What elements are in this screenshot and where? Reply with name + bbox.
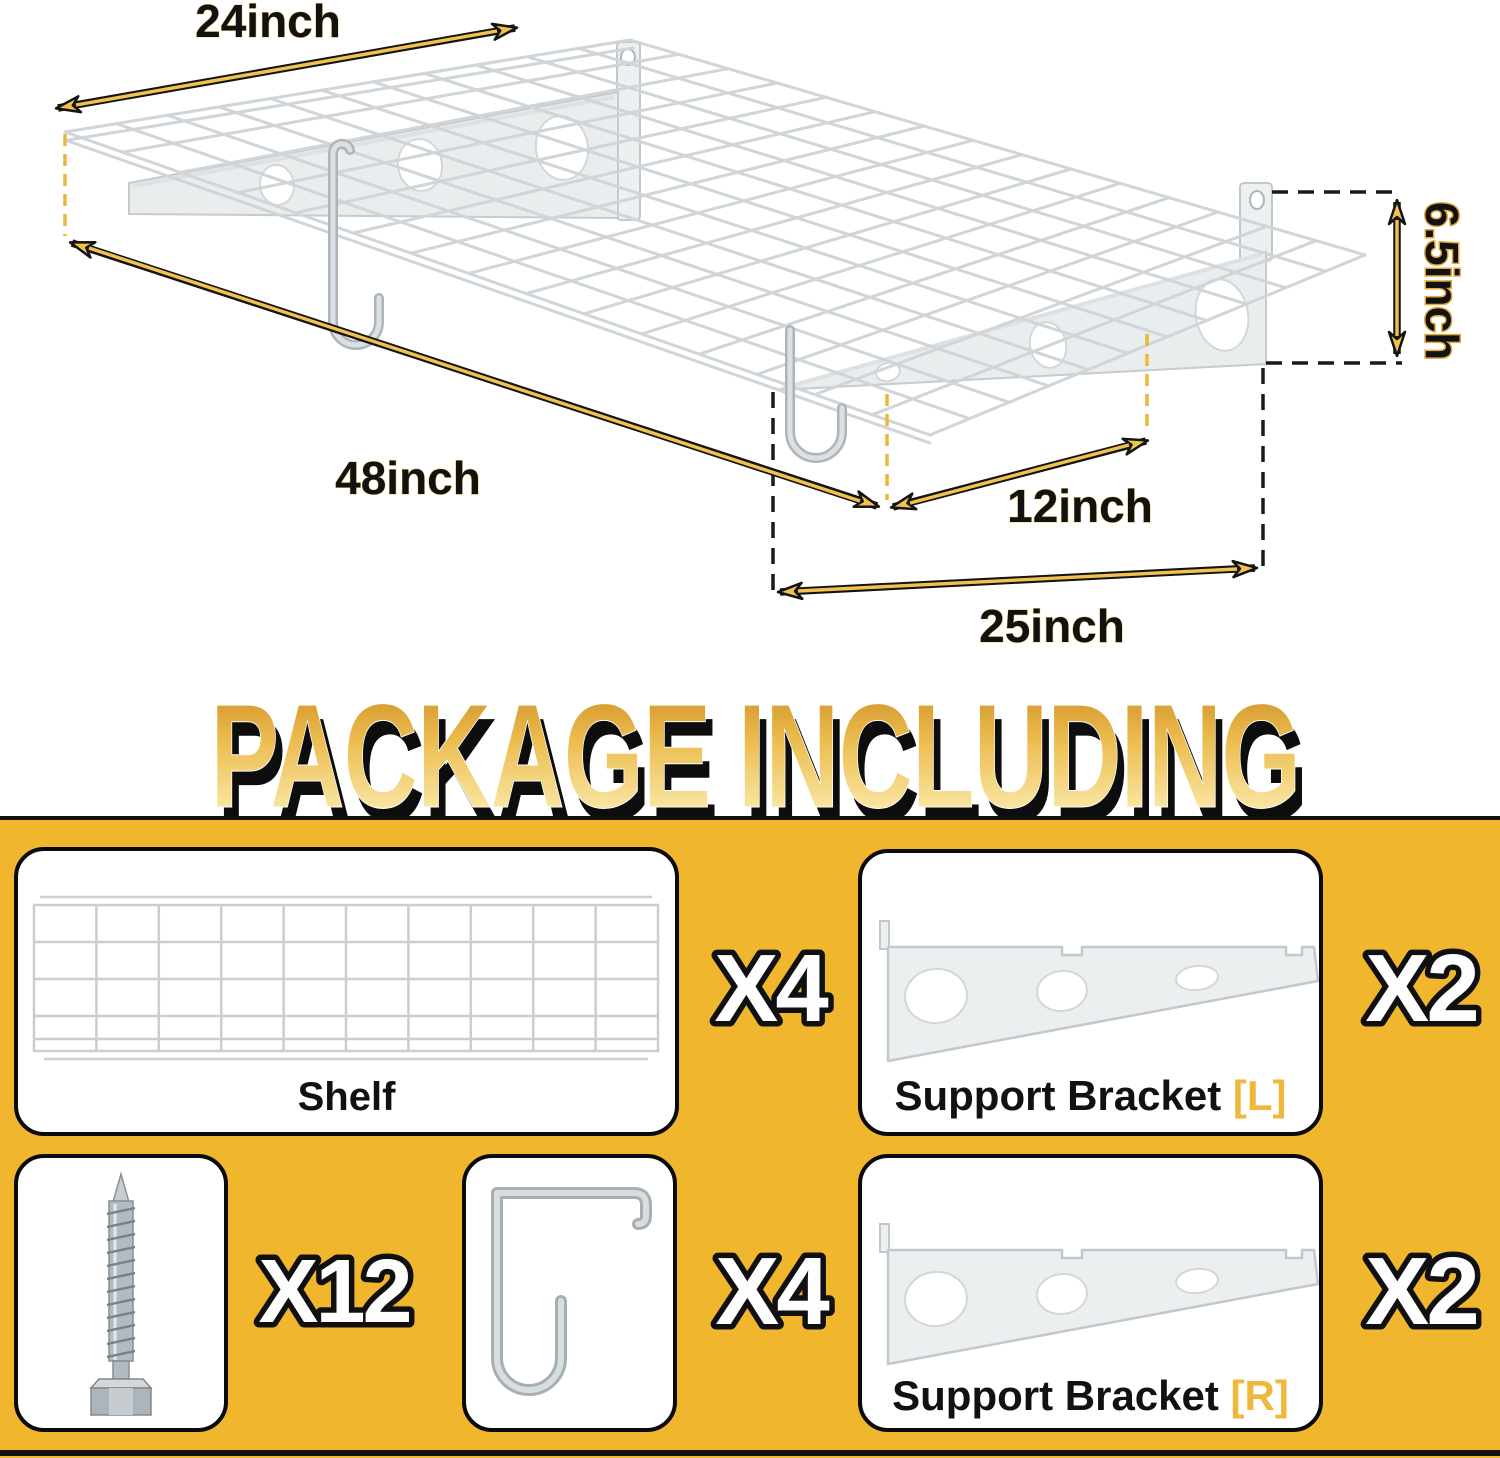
bottom-border-line <box>0 1450 1500 1456</box>
bracket-right-quantity-text: X2 <box>1365 1238 1476 1345</box>
shelf-quantity-badge: X4 <box>685 929 855 1049</box>
dim-label-bracket-span: 25inch <box>979 600 1125 652</box>
hooks-quantity-badge: X4 <box>686 1232 856 1352</box>
dimension-arrow-25inch <box>780 568 1255 592</box>
screws-quantity-text: X12 <box>258 1242 409 1342</box>
bracket-right-suffix: [R] <box>1231 1372 1289 1419</box>
product-infographic: { "title": "PACKAGE INCLUDING", "diagram… <box>0 0 1500 1458</box>
wire-shelf-dimension-diagram: 24inch 48inch 12inch 25inch 6.5inch <box>0 0 1500 690</box>
bracket-left-suffix: [L] <box>1233 1072 1287 1119</box>
bracket-left-label-text: Support Bracket <box>894 1072 1232 1119</box>
dim-label-height: 6.5inch <box>1416 202 1468 361</box>
hooks-quantity-text: X4 <box>715 1238 829 1345</box>
dim-label-width: 24inch <box>195 0 341 47</box>
dim-label-bracket-depth: 12inch <box>1007 480 1153 532</box>
bracket-right-label-text: Support Bracket <box>892 1372 1230 1419</box>
shelf-label-text: Shelf <box>298 1075 396 1119</box>
shelf-grid-drawing <box>30 887 662 1077</box>
support-bracket-drawing <box>862 1162 1319 1380</box>
shelf-label: Shelf <box>18 1075 675 1120</box>
package-item-bracket-right-card: Support Bracket [R] <box>858 1154 1323 1432</box>
bracket-right-quantity-badge: X2 <box>1336 1232 1500 1352</box>
screws-quantity-badge: X12 <box>244 1232 424 1352</box>
package-item-bracket-left-card: Support Bracket [L] <box>858 849 1323 1136</box>
package-including-section: Shelf Support Bracket [L] <box>0 816 1500 1458</box>
wire-mesh-shelf-illustration <box>65 40 1365 443</box>
hook-icon <box>466 1158 673 1428</box>
shelf-quantity-text: X4 <box>714 935 828 1042</box>
bracket-left-quantity-text: X2 <box>1365 935 1476 1042</box>
package-item-shelf-card: Shelf <box>14 847 679 1136</box>
bracket-left-label: Support Bracket [L] <box>862 1072 1319 1120</box>
screw-icon <box>20 1166 222 1422</box>
support-bracket-drawing <box>862 859 1319 1077</box>
package-item-hooks-card <box>462 1154 677 1432</box>
bracket-left-quantity-badge: X2 <box>1336 929 1500 1049</box>
bracket-right-label: Support Bracket [R] <box>862 1372 1319 1420</box>
package-item-screws-card <box>14 1154 228 1432</box>
dim-label-length: 48inch <box>335 452 481 504</box>
